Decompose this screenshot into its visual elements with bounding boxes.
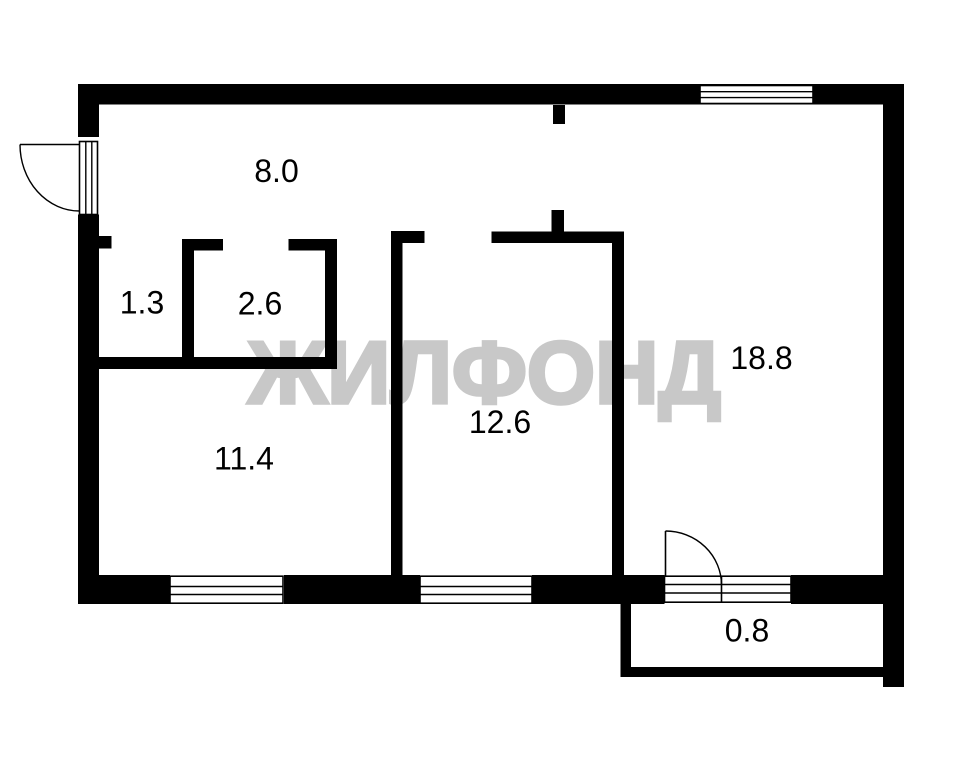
svg-text:2.6: 2.6 — [238, 286, 282, 322]
svg-text:11.4: 11.4 — [214, 441, 274, 477]
svg-text:1.3: 1.3 — [120, 285, 164, 321]
svg-text:12.6: 12.6 — [469, 404, 531, 440]
svg-text:0.8: 0.8 — [725, 613, 769, 649]
svg-text:8.0: 8.0 — [254, 153, 298, 189]
svg-text:18.8: 18.8 — [730, 340, 792, 376]
